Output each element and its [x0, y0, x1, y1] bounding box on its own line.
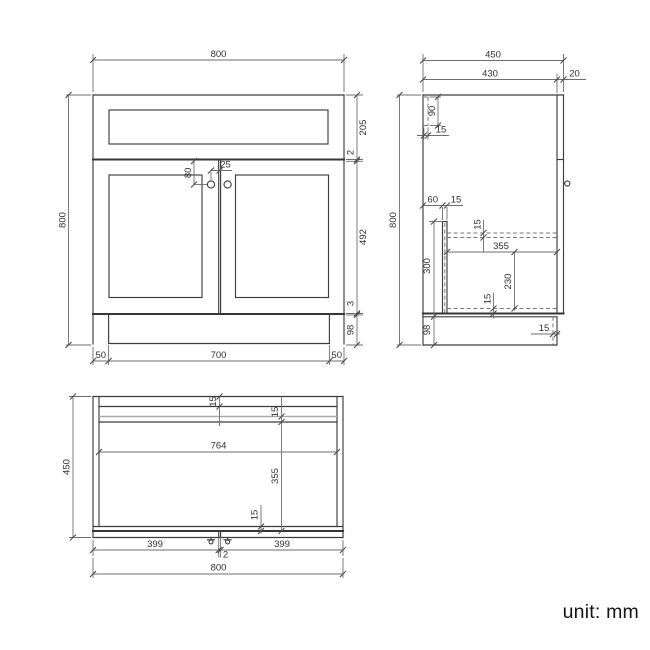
plan-view-outline [93, 397, 343, 544]
front-view: 800 800 205 2 492 3 98 [58, 49, 370, 365]
side-bottom-thickness-label: 15 [483, 294, 494, 305]
side-back-thickness-label: 15 [436, 125, 447, 136]
plan-width-label: 800 [211, 563, 227, 574]
side-dim-top-depth: 450 430 20 [420, 50, 586, 94]
knob-drop-label: 80 [183, 168, 194, 179]
side-shelf-thickness-label: 15 [473, 219, 484, 230]
right-door-panel [236, 175, 329, 298]
side-shelf-depth-label: 355 [493, 241, 509, 252]
front-dim-left-height: 800 [58, 92, 92, 348]
plan-dim-front-rail: 15 [250, 505, 265, 534]
knob-offset-label: 25 [220, 160, 231, 171]
side-door-thickness-label: 20 [569, 69, 580, 80]
front-plinth-height-label: 98 [346, 325, 357, 336]
side-dim-back-panel: 90 15 [417, 94, 449, 140]
plan-door-right-label: 399 [274, 539, 290, 550]
plan-front-thickness-label: 15 [250, 510, 261, 521]
front-dim-right-chain: 205 2 492 3 98 [346, 92, 370, 348]
door-knob-icon-plan-left [208, 538, 215, 544]
plan-depth-label: 450 [62, 459, 73, 475]
front-door-height-label: 492 [358, 229, 369, 245]
plan-dim-left-depth: 450 [62, 394, 92, 541]
plan-inner-width-label: 764 [211, 441, 227, 452]
plan-rail2-thickness-label: 15 [270, 407, 281, 418]
door-knob-icon-plan-right [224, 538, 231, 544]
front-dim-top-width: 800 [90, 49, 347, 92]
front-view-outline [93, 95, 344, 344]
side-plinth-recess-label: 15 [539, 323, 550, 334]
plan-rail1-thickness-label: 15 [208, 396, 219, 407]
plan-dim-inner-width: 764 [96, 441, 340, 456]
door-knob-icon-side [565, 181, 570, 186]
side-dim-partition: 60 15 [420, 195, 463, 221]
front-recess-left-label: 50 [96, 350, 107, 361]
plan-dim-back-rails: 15 15 355 [208, 394, 285, 535]
side-partition-thickness-label: 15 [451, 195, 462, 206]
plan-door-gap-label: 2 [223, 550, 228, 561]
front-height-label: 800 [58, 212, 69, 228]
technical-drawing-canvas: 800 800 205 2 492 3 98 [0, 0, 650, 650]
side-height-label: 800 [388, 212, 399, 228]
plan-view: 450 15 15 355 764 15 3 [62, 394, 347, 579]
side-under-height-label: 230 [503, 274, 514, 290]
unit-label: unit: mm [563, 601, 639, 624]
side-depth-total-label: 450 [485, 50, 501, 61]
drawer-front-panel [109, 110, 328, 144]
side-partition-offset-label: 60 [427, 195, 438, 206]
door-knob-icon-right [224, 181, 231, 188]
side-depth-carcass-label: 430 [482, 69, 498, 80]
door-knob-icon-left [207, 181, 214, 188]
left-door-panel [109, 175, 202, 298]
plan-door-left-label: 399 [147, 539, 163, 550]
plan-dim-total-width: 800 [90, 558, 346, 578]
front-gap-top-label: 2 [346, 150, 357, 155]
front-width-label: 800 [211, 49, 227, 60]
side-back-height-label: 90 [427, 106, 438, 117]
side-dim-interior: 15 355 230 15 15 [444, 219, 560, 337]
plan-dim-doors: 399 2 399 [90, 538, 346, 561]
front-dim-bottom-chain: 50 700 50 [90, 345, 347, 365]
plan-inner-depth-label: 355 [270, 468, 281, 484]
front-drawer-height-label: 205 [358, 120, 369, 136]
side-plinth-height-label: 98 [422, 325, 433, 336]
side-mid-height-label: 300 [422, 258, 433, 274]
side-view: 450 430 20 800 300 98 90 [388, 50, 586, 349]
front-recess-right-label: 50 [331, 350, 342, 361]
vanity-drawing-svg: 800 800 205 2 492 3 98 [0, 0, 650, 650]
front-plinth-width-label: 700 [211, 350, 227, 361]
front-gap-bottom-label: 3 [346, 301, 357, 306]
